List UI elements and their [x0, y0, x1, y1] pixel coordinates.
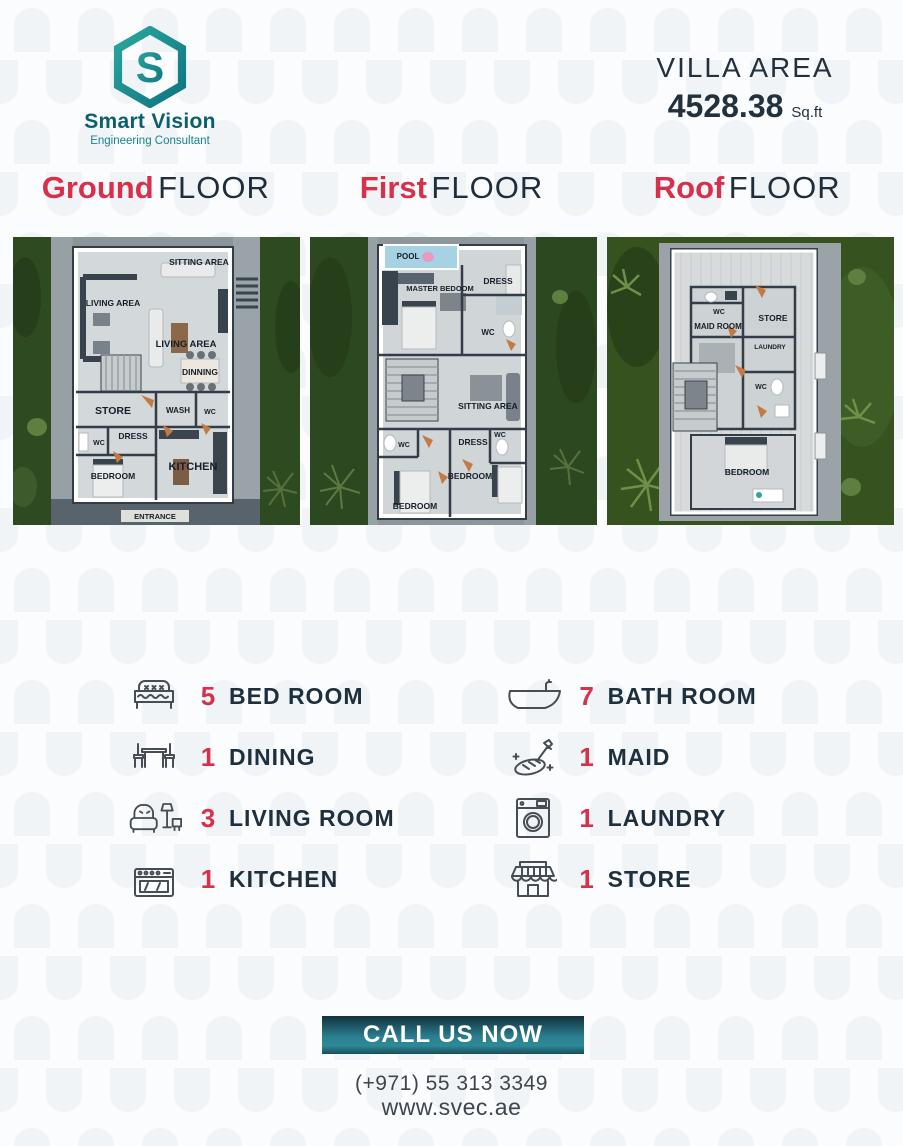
room-label: BEDROOM	[725, 467, 769, 477]
features-list: 5 BED ROOM 1 DINING	[126, 672, 757, 916]
room-label: DINNING	[182, 367, 218, 377]
room-label: WASH	[166, 406, 190, 415]
room-label: WC	[494, 432, 506, 439]
room-label: STORE	[95, 405, 131, 417]
feature-label: KITCHEN	[229, 866, 338, 893]
floor-titles-row: Ground FLOOR First FLOOR Roof FLOOR	[13, 170, 890, 206]
logo-subtitle: Engineering Consultant	[40, 135, 260, 147]
room-label: LAUNDRY	[754, 344, 786, 351]
armchair-lamp-icon	[126, 794, 182, 842]
roof-floor-title-rest: FLOOR	[729, 170, 841, 205]
feature-count: 3	[198, 803, 218, 834]
call-us-now-button[interactable]: CALL US NOW	[322, 1016, 584, 1054]
ground-floor-title: Ground FLOOR	[13, 170, 299, 206]
feature-bedroom: 5 BED ROOM	[126, 672, 395, 720]
room-label: POOL	[397, 252, 420, 261]
room-label: BEDROOM	[91, 471, 135, 481]
room-label: WC	[755, 384, 767, 391]
logo-monogram: S	[136, 44, 164, 92]
room-label: MAID ROOM	[694, 322, 742, 331]
smart-vision-logo: S Smart Vision Engineering Consultant	[40, 26, 260, 147]
roof-floor-title: Roof FLOOR	[604, 170, 890, 206]
feature-label: STORE	[608, 866, 692, 893]
room-label: LIVING AREA	[156, 339, 217, 350]
room-label: KITCHEN	[169, 461, 218, 473]
room-label: DRESS	[118, 431, 148, 441]
villa-area-label: VILLA AREA	[620, 52, 870, 84]
ground-floor-plan: SITTING AREA LIVING AREA LIVING AREA DIN…	[13, 237, 300, 525]
feature-label: BATH ROOM	[608, 683, 757, 710]
features-right-column: 7 BATH ROOM 1 MAID	[505, 672, 757, 916]
ground-floor-title-rest: FLOOR	[158, 170, 270, 205]
villa-area-value: 4528.38	[668, 88, 784, 125]
room-label: WC	[204, 409, 216, 416]
room-label: WC	[398, 442, 410, 449]
bathtub-icon	[505, 672, 561, 720]
feature-kitchen: 1 KITCHEN	[126, 855, 395, 903]
storefront-icon	[505, 855, 561, 903]
room-label: WC	[93, 440, 105, 447]
first-floor-title: First FLOOR	[309, 170, 595, 206]
room-label: LIVING AREA	[86, 298, 140, 308]
features-left-column: 5 BED ROOM 1 DINING	[126, 672, 395, 916]
stove-icon	[126, 855, 182, 903]
feature-label: LIVING ROOM	[229, 805, 395, 832]
feature-count: 7	[577, 681, 597, 712]
feature-label: BED ROOM	[229, 683, 364, 710]
feature-maid: 1 MAID	[505, 733, 757, 781]
feature-laundry: 1 LAUNDRY	[505, 794, 757, 842]
washing-machine-icon	[505, 794, 561, 842]
feature-label: DINING	[229, 744, 316, 771]
room-label: SITTING AREA	[458, 401, 518, 411]
feature-living-room: 3 LIVING ROOM	[126, 794, 395, 842]
feature-bathroom: 7 BATH ROOM	[505, 672, 757, 720]
feature-store: 1 STORE	[505, 855, 757, 903]
feature-dining: 1 DINING	[126, 733, 395, 781]
phone-number[interactable]: (+971) 55 313 3349	[0, 1072, 903, 1096]
room-label: DRESS	[458, 437, 488, 447]
first-floor-title-rest: FLOOR	[431, 170, 543, 205]
floor-plans-row: SITTING AREA LIVING AREA LIVING AREA DIN…	[13, 237, 894, 525]
dining-table-icon	[126, 733, 182, 781]
feature-count: 1	[577, 864, 597, 895]
room-label: BEDROOM	[393, 501, 437, 511]
room-label: BEDROOM	[448, 471, 492, 481]
room-label: DRESS	[483, 276, 513, 286]
room-label: MASTER BEDOOM	[406, 284, 474, 293]
villa-area-block: VILLA AREA 4528.38 Sq.ft	[620, 52, 870, 125]
room-label: SITTING AREA	[169, 257, 229, 267]
logo-hexagon-icon: S	[108, 26, 192, 108]
bed-icon	[126, 672, 182, 720]
first-floor-plan: POOL MASTER BEDOOM DRESS WC SITTING AREA…	[310, 237, 597, 525]
ground-floor-title-accent: Ground	[42, 170, 154, 205]
room-label: WC	[481, 328, 495, 337]
roof-floor-title-accent: Roof	[654, 170, 725, 205]
villa-area-unit: Sq.ft	[791, 104, 822, 121]
room-label: WC	[713, 309, 725, 316]
room-label: STORE	[758, 313, 787, 323]
logo-name: Smart Vision	[40, 110, 260, 134]
feature-label: LAUNDRY	[608, 805, 727, 832]
feature-label: MAID	[608, 744, 671, 771]
feature-count: 1	[577, 742, 597, 773]
feature-count: 1	[198, 864, 218, 895]
roof-floor-plan: WC MAID ROOM STORE LAUNDRY WC BEDROOM	[607, 237, 894, 525]
feature-count: 1	[198, 742, 218, 773]
first-floor-title-accent: First	[360, 170, 427, 205]
room-label: ENTRANCE	[134, 512, 176, 521]
feature-count: 1	[577, 803, 597, 834]
website-url[interactable]: www.svec.ae	[0, 1094, 903, 1121]
cleaning-sponge-icon	[505, 733, 561, 781]
feature-count: 5	[198, 681, 218, 712]
